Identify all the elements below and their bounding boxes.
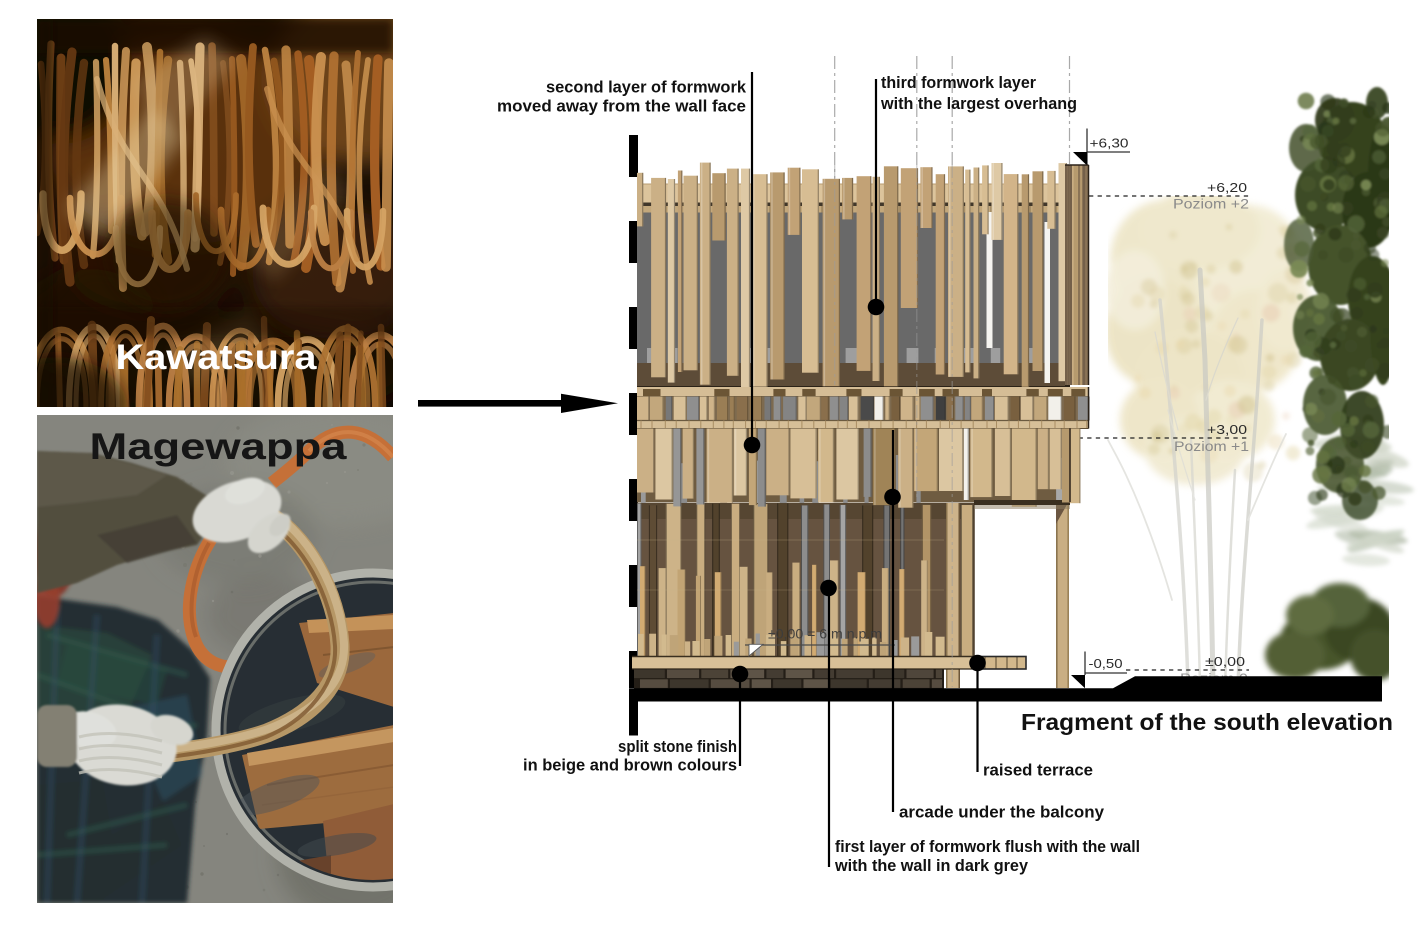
svg-text:split stone finish: split stone finish: [618, 738, 737, 756]
svg-text:arcade under the balcony: arcade under the balcony: [899, 804, 1104, 822]
svg-text:second layer of formwork: second layer of formwork: [546, 79, 747, 97]
svg-text:Magewappa: Magewappa: [90, 426, 348, 467]
svg-text:with the largest overhang: with the largest overhang: [880, 95, 1077, 113]
svg-text:with the wall in dark grey: with the wall in dark grey: [834, 857, 1028, 875]
svg-text:Poziom +2: Poziom +2: [1173, 197, 1249, 212]
svg-text:third formwork layer: third formwork layer: [881, 74, 1037, 92]
svg-text:first layer of formwork flush: first layer of formwork flush with the w…: [835, 838, 1140, 856]
svg-text:+3,00: +3,00: [1207, 422, 1247, 437]
svg-text:+6,30: +6,30: [1090, 136, 1129, 151]
svg-text:in beige and brown colours: in beige and brown colours: [523, 757, 737, 775]
svg-text:+6,20: +6,20: [1207, 180, 1247, 195]
svg-text:moved away from the wall face: moved away from the wall face: [497, 98, 746, 116]
svg-text:Poziom +1: Poziom +1: [1174, 439, 1249, 454]
svg-text:Fragment of the south elevatio: Fragment of the south elevation: [1021, 709, 1393, 735]
svg-text:±0,00 = 6 m n.p.m: ±0,00 = 6 m n.p.m: [768, 627, 882, 642]
svg-text:-0,50: -0,50: [1089, 656, 1123, 671]
svg-text:Kawatsura: Kawatsura: [116, 338, 318, 377]
svg-text:raised terrace: raised terrace: [983, 762, 1093, 780]
svg-text:±0,00: ±0,00: [1205, 654, 1245, 669]
